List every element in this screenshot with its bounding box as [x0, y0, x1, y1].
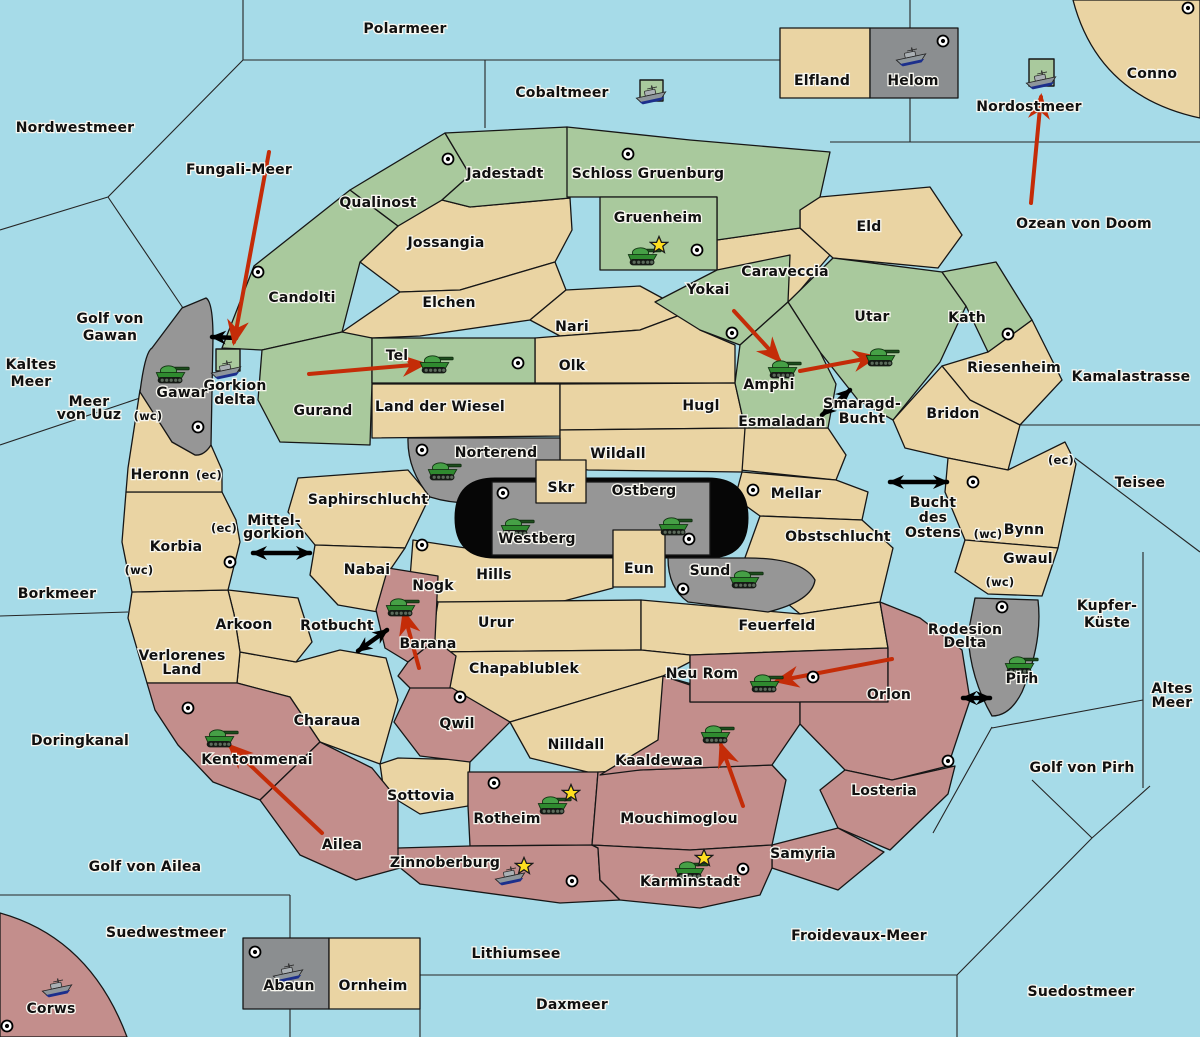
label-rotheim: Rotheim	[473, 811, 540, 827]
label-kaltes-meer: KaltesMeer	[6, 357, 57, 390]
label-kentommenai: Kentommenai	[201, 752, 312, 768]
capital-dot-center	[695, 248, 699, 252]
label-golf-von-ailea: Golf von Ailea	[89, 859, 202, 875]
label-jadestadt: Jadestadt	[465, 166, 543, 182]
capital-dot	[2, 1021, 13, 1032]
capital-dot-center	[626, 152, 630, 156]
capital-dot	[417, 445, 428, 456]
capital-dot	[748, 485, 759, 496]
capital-dot-center	[492, 781, 496, 785]
territory-esmaladan[interactable]	[740, 428, 846, 480]
capital-dot-center	[941, 39, 945, 43]
label-candolti: Candolti	[268, 290, 335, 306]
label-cobaltmeer: Cobaltmeer	[515, 85, 608, 101]
label-obstschlucht: Obstschlucht	[785, 529, 891, 545]
capital-dot	[513, 358, 524, 369]
capital-dot-center	[811, 675, 815, 679]
label-riesenheim: Riesenheim	[967, 360, 1061, 376]
capital-dot	[443, 154, 454, 165]
label-bridon: Bridon	[926, 406, 979, 422]
capital-dot	[692, 245, 703, 256]
label-elchen: Elchen	[422, 295, 475, 311]
label-ailea: Ailea	[322, 837, 362, 853]
territory-wildall[interactable]	[560, 428, 745, 472]
label-lithiumsee: Lithiumsee	[471, 946, 560, 962]
label-samyria: Samyria	[770, 846, 836, 862]
label-mouchimoglou: Mouchimoglou	[620, 811, 738, 827]
label-orlon: Orlon	[867, 687, 911, 703]
label-golf-von-gawan: Golf vonGawan	[76, 311, 143, 344]
capital-dot-center	[186, 706, 190, 710]
label-altes-meer: AltesMeer	[1151, 681, 1192, 711]
label-zinnoberburg: Zinnoberburg	[390, 855, 500, 871]
label-abaun: Abaun	[263, 978, 314, 994]
label-skr: Skr	[548, 480, 575, 496]
capital-dot-center	[516, 361, 520, 365]
label-losteria: Losteria	[851, 783, 917, 799]
label-conno: Conno	[1127, 66, 1178, 82]
label-ec: (ec)	[1048, 453, 1074, 467]
capital-dot	[183, 703, 194, 714]
label-gurand: Gurand	[294, 403, 353, 419]
label-kamalastrasse: Kamalastrasse	[1072, 369, 1191, 385]
capital-dot-center	[946, 759, 950, 763]
label-nilldall: Nilldall	[548, 737, 605, 753]
capital-dot	[808, 672, 819, 683]
label-ostberg: Ostberg	[612, 483, 677, 499]
capital-dot-center	[971, 480, 975, 484]
territory-urur[interactable]	[430, 600, 641, 652]
capital-dot-center	[420, 543, 424, 547]
label-wc: (wc)	[986, 575, 1015, 589]
label-wc: (wc)	[974, 527, 1003, 541]
label-eun: Eun	[624, 561, 654, 577]
label-rotbucht: Rotbucht	[300, 618, 374, 634]
label-land-der-wiesel: Land der Wiesel	[375, 399, 505, 415]
capital-dot-center	[196, 425, 200, 429]
capital-dot	[678, 584, 689, 595]
capital-dot	[943, 756, 954, 767]
label-saphirschlucht: Saphirschlucht	[308, 492, 428, 508]
label-daxmeer: Daxmeer	[536, 997, 608, 1013]
territory-mouchimoglou[interactable]	[592, 765, 786, 850]
label-bynn: Bynn	[1004, 522, 1045, 538]
territory-eun[interactable]	[613, 530, 665, 587]
capital-dot	[193, 422, 204, 433]
label-mellar: Mellar	[771, 486, 822, 502]
label-caraveccia: Caraveccia	[741, 264, 829, 280]
label-esmaladan: Esmaladan	[738, 414, 825, 430]
label-kaaldewaa: Kaaldewaa	[615, 753, 703, 769]
capital-dot-center	[1000, 605, 1004, 609]
capital-dot	[1183, 3, 1194, 14]
label-nogk: Nogk	[412, 578, 454, 594]
capital-dot-center	[570, 879, 574, 883]
label-schloss-gruenburg: Schloss Gruenburg	[572, 166, 724, 182]
label-neu-rom: Neu Rom	[666, 666, 738, 682]
capital-dot-center	[751, 488, 755, 492]
legend-cell-ornheim[interactable]	[329, 938, 420, 1009]
label-kath: Kath	[948, 310, 986, 326]
label-korbia: Korbia	[150, 539, 203, 555]
label-westberg: Westberg	[498, 531, 576, 547]
capital-dot-center	[446, 157, 450, 161]
label-tel: Tel	[386, 348, 409, 364]
label-nordostmeer: Nordostmeer	[976, 99, 1082, 115]
label-qwil: Qwil	[439, 716, 474, 732]
capital-dot	[253, 267, 264, 278]
label-barana: Barana	[399, 636, 456, 652]
label-fungali-meer: Fungali-Meer	[186, 162, 292, 178]
war-map: PolarmeerNordwestmeerCobaltmeerNordostme…	[0, 0, 1200, 1037]
label-yokai: Yokai	[685, 282, 729, 298]
label-wildall: Wildall	[590, 446, 646, 462]
capital-dot-center	[5, 1024, 9, 1028]
capital-dot	[727, 328, 738, 339]
capital-dot-center	[256, 270, 260, 274]
capital-dot	[938, 36, 949, 47]
label-jossangia: Jossangia	[407, 235, 485, 251]
label-hills: Hills	[476, 567, 511, 583]
label-ozean-von-doom: Ozean von Doom	[1016, 216, 1152, 232]
label-chapablublek: Chapablublek	[469, 661, 579, 677]
label-qualinost: Qualinost	[339, 195, 416, 211]
label-wc: (wc)	[125, 563, 154, 577]
label-amphi: Amphi	[743, 377, 794, 393]
label-helom: Helom	[887, 73, 938, 89]
label-arkoon: Arkoon	[215, 617, 272, 633]
label-pirh: Pirh	[1006, 671, 1039, 687]
label-gruenheim: Gruenheim	[614, 210, 702, 226]
capital-dot-center	[420, 448, 424, 452]
label-borkmeer: Borkmeer	[18, 586, 97, 602]
label-nordwestmeer: Nordwestmeer	[16, 120, 135, 136]
label-sund: Sund	[690, 563, 731, 579]
label-gawar: Gawar	[156, 385, 207, 401]
label-heronn: Heronn	[131, 467, 190, 483]
label-mittel-gorkion: Mittel-gorkion	[243, 513, 305, 542]
territory-gruenheim[interactable]	[600, 197, 717, 270]
capital-dot	[684, 534, 695, 545]
label-polarmeer: Polarmeer	[363, 21, 446, 37]
label-wc: (wc)	[134, 409, 163, 423]
label-suedwestmeer: Suedwestmeer	[106, 925, 226, 941]
capital-dot	[455, 692, 466, 703]
label-froidevaux-meer: Froidevaux-Meer	[791, 928, 927, 944]
capital-dot	[417, 540, 428, 551]
territory-rotheim[interactable]	[468, 772, 598, 846]
capital-dot	[567, 876, 578, 887]
capital-dot-center	[730, 331, 734, 335]
label-corws: Corws	[26, 1001, 75, 1017]
label-eld: Eld	[857, 219, 882, 235]
label-gwaul: Gwaul	[1003, 551, 1053, 567]
capital-dot-center	[1186, 6, 1190, 10]
label-golf-von-pirh: Golf von Pirh	[1030, 760, 1135, 776]
label-karminstadt: Karminstadt	[640, 874, 740, 890]
capital-dot	[1003, 329, 1014, 340]
label-hugl: Hugl	[682, 398, 719, 414]
capital-dot	[738, 864, 749, 875]
capital-dot-center	[253, 950, 257, 954]
capital-dot-center	[687, 537, 691, 541]
capital-dot-center	[741, 867, 745, 871]
capital-dot-center	[458, 695, 462, 699]
territory-saphirschlucht[interactable]	[288, 470, 430, 548]
label-kupfer-küste: Kupfer-Küste	[1077, 598, 1137, 631]
capital-dot-center	[681, 587, 685, 591]
label-ec: (ec)	[211, 521, 237, 535]
label-nabai: Nabai	[344, 562, 390, 578]
label-sottovia: Sottovia	[387, 788, 455, 804]
label-teisee: Teisee	[1115, 475, 1166, 491]
capital-dot	[498, 488, 509, 499]
label-nari: Nari	[555, 319, 589, 335]
capital-dot-center	[1006, 332, 1010, 336]
retreat-arrow	[212, 337, 236, 338]
label-ornheim: Ornheim	[338, 978, 407, 994]
capital-dot	[968, 477, 979, 488]
label-ec: (ec)	[196, 468, 222, 482]
label-urur: Urur	[478, 615, 514, 631]
territory-gurand[interactable]	[258, 332, 372, 445]
label-utar: Utar	[854, 309, 889, 325]
capital-dot-center	[501, 491, 505, 495]
capital-dot	[489, 778, 500, 789]
label-elfland: Elfland	[794, 73, 850, 89]
capital-dot	[997, 602, 1008, 613]
capital-dot	[225, 557, 236, 568]
label-charaua: Charaua	[294, 713, 361, 729]
label-olk: Olk	[559, 358, 586, 374]
label-feuerfeld: Feuerfeld	[738, 618, 815, 634]
capital-dot	[250, 947, 261, 958]
capital-dot-center	[228, 560, 232, 564]
label-doringkanal: Doringkanal	[31, 733, 129, 749]
label-suedostmeer: Suedostmeer	[1028, 984, 1135, 1000]
capital-dot	[623, 149, 634, 160]
label-norterend: Norterend	[455, 445, 538, 461]
